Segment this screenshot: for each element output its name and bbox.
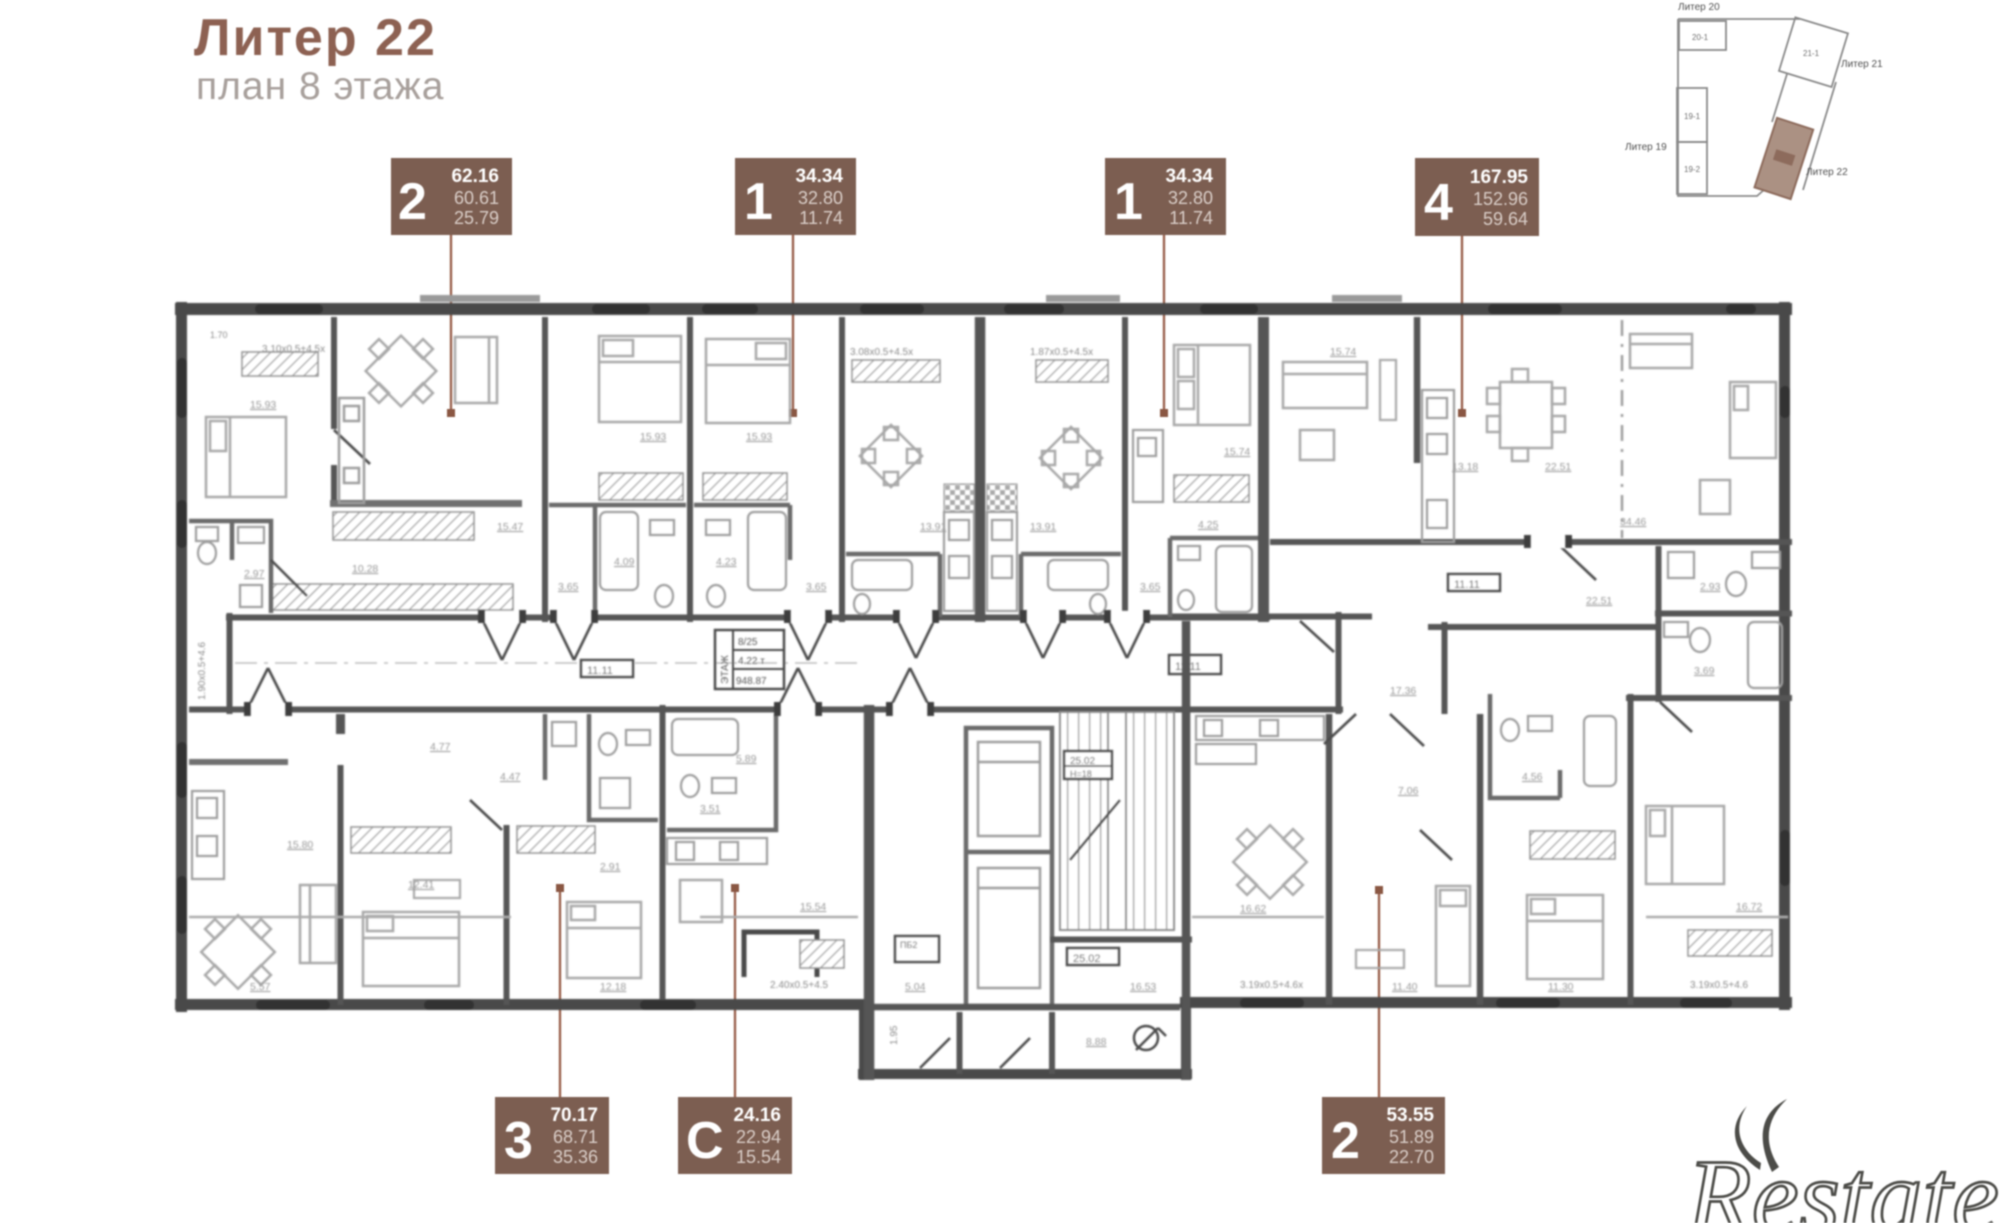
svg-text:Литер 19: Литер 19 [1625,142,1667,153]
svg-text:3.19х0.5+4.6: 3.19х0.5+4.6 [1690,980,1749,991]
svg-text:11.11: 11.11 [1454,579,1480,591]
svg-text:ПБ2: ПБ2 [900,940,917,950]
svg-text:22.94: 22.94 [736,1127,781,1147]
svg-text:13.91: 13.91 [920,521,946,533]
svg-text:4.56: 4.56 [1522,771,1543,783]
svg-text:C: C [686,1112,724,1170]
svg-text:8/25: 8/25 [738,637,758,648]
svg-text:4.22 т: 4.22 т [738,656,765,667]
svg-text:24.16: 24.16 [733,1105,781,1126]
svg-text:4.77: 4.77 [430,741,451,753]
svg-text:25.79: 25.79 [454,208,499,228]
svg-text:3.51: 3.51 [700,803,721,815]
svg-text:16.62: 16.62 [1240,903,1266,915]
svg-text:19-1: 19-1 [1684,112,1701,121]
svg-text:1.95: 1.95 [889,1025,900,1045]
svg-text:3: 3 [504,1112,533,1170]
svg-text:4.47: 4.47 [500,771,521,783]
svg-text:15.93: 15.93 [746,431,772,443]
svg-text:11.40: 11.40 [1392,981,1418,993]
svg-text:ЭТАЖ: ЭТАЖ [720,654,731,684]
svg-text:16.53: 16.53 [1130,981,1156,993]
svg-text:3.69: 3.69 [1694,665,1715,677]
svg-text:8.88: 8.88 [1086,1036,1107,1048]
svg-text:32.80: 32.80 [1168,188,1213,208]
svg-text:2.97: 2.97 [244,568,265,580]
svg-text:12.41: 12.41 [408,879,434,891]
svg-text:Restate: Restate [1686,1138,1999,1223]
svg-text:2: 2 [1331,1112,1360,1170]
svg-text:25.02: 25.02 [1073,953,1101,965]
svg-text:1.90х0.5+4.6: 1.90х0.5+4.6 [197,641,208,700]
svg-text:59.64: 59.64 [1483,209,1528,229]
svg-text:2: 2 [398,173,427,231]
svg-text:3.19х0.5+4.6х: 3.19х0.5+4.6х [1240,980,1303,991]
svg-text:68.71: 68.71 [553,1127,598,1147]
svg-text:2.91: 2.91 [600,861,621,873]
svg-text:Литер 20: Литер 20 [1678,2,1720,13]
svg-text:70.17: 70.17 [550,1105,598,1126]
svg-text:34.34: 34.34 [1165,166,1213,187]
svg-text:10.28: 10.28 [352,563,378,575]
svg-text:11.74: 11.74 [799,208,843,228]
svg-text:1: 1 [1114,173,1143,231]
svg-text:3.65: 3.65 [1140,581,1161,593]
svg-text:1: 1 [744,173,773,231]
svg-text:19-2: 19-2 [1684,165,1701,174]
svg-text:51.89: 51.89 [1389,1127,1434,1147]
svg-text:5.57: 5.57 [250,981,271,993]
svg-text:17.36: 17.36 [1390,685,1416,697]
svg-text:Литер 21: Литер 21 [1841,59,1883,70]
svg-text:2.40х0.5+4.5: 2.40х0.5+4.5 [770,980,829,991]
svg-text:167.95: 167.95 [1470,167,1529,188]
svg-text:22.70: 22.70 [1389,1147,1434,1167]
svg-text:5.89: 5.89 [736,753,757,765]
svg-text:3.65: 3.65 [558,581,579,593]
svg-text:62.16: 62.16 [451,166,499,187]
svg-text:34.46: 34.46 [1620,516,1646,528]
svg-text:3.08х0.5+4.5х: 3.08х0.5+4.5х [850,347,913,358]
svg-text:4.09: 4.09 [614,556,635,568]
svg-text:план 8 этажа: план 8 этажа [196,65,444,108]
svg-text:34.34: 34.34 [795,166,843,187]
svg-text:Литер 22: Литер 22 [194,9,437,67]
svg-text:15.93: 15.93 [250,399,276,411]
svg-text:35.36: 35.36 [553,1147,598,1167]
svg-text:15.74: 15.74 [1330,346,1356,358]
svg-text:32.80: 32.80 [798,188,843,208]
svg-text:3.10х0.5+4.5х: 3.10х0.5+4.5х [262,344,325,355]
svg-text:22.51: 22.51 [1545,461,1571,473]
svg-text:15.54: 15.54 [736,1147,781,1167]
svg-text:7.06: 7.06 [1398,785,1419,797]
svg-text:20-1: 20-1 [1692,33,1709,42]
svg-text:Литер 22: Литер 22 [1806,167,1848,178]
svg-text:11.30: 11.30 [1548,981,1574,993]
svg-text:22.51: 22.51 [1586,595,1612,607]
svg-text:4.23: 4.23 [716,556,737,568]
svg-text:3.65: 3.65 [806,581,827,593]
svg-text:4.25: 4.25 [1198,519,1219,531]
svg-text:15.74: 15.74 [1224,446,1250,458]
svg-text:Н=18: Н=18 [1070,769,1092,779]
svg-text:5.04: 5.04 [905,981,926,993]
svg-text:60.61: 60.61 [454,188,499,208]
svg-text:13.18: 13.18 [1452,461,1478,473]
svg-text:11.11: 11.11 [587,665,613,677]
svg-text:15.54: 15.54 [800,901,826,913]
svg-text:12.18: 12.18 [600,981,626,993]
svg-text:1.87х0.5+4.5х: 1.87х0.5+4.5х [1030,347,1093,358]
svg-text:2.93: 2.93 [1700,581,1721,593]
svg-text:11.74: 11.74 [1169,208,1213,228]
svg-text:948.87: 948.87 [736,676,767,687]
svg-text:4: 4 [1424,174,1453,232]
svg-text:13.91: 13.91 [1030,521,1056,533]
svg-text:16.72: 16.72 [1736,901,1762,913]
svg-text:53.55: 53.55 [1386,1105,1434,1126]
svg-text:15.80: 15.80 [287,839,313,851]
svg-text:15.47: 15.47 [497,521,523,533]
svg-text:152.96: 152.96 [1473,189,1528,209]
svg-text:1.70: 1.70 [210,330,228,340]
svg-text:15.93: 15.93 [640,431,666,443]
svg-text:21-1: 21-1 [1803,49,1820,58]
